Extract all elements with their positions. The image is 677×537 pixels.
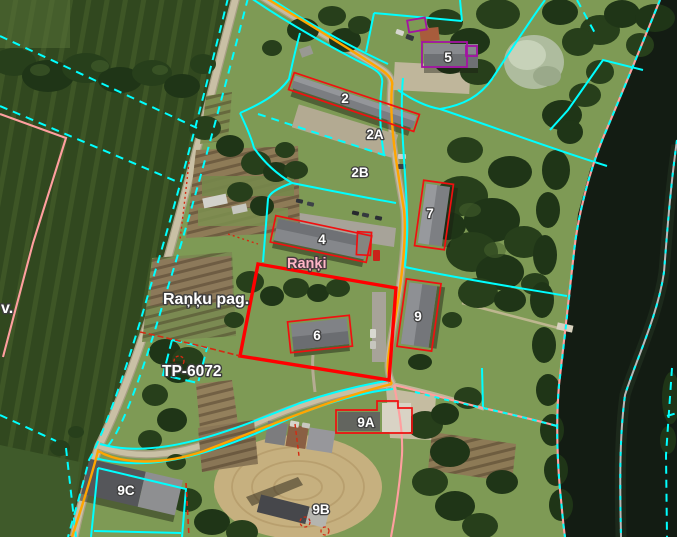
building-label-9a: 9A xyxy=(357,415,375,430)
place-label-plan-ref: TP-6072 xyxy=(162,363,221,380)
place-label-parish: Raņķu pag. xyxy=(163,291,249,308)
building-label-2a: 2A xyxy=(366,127,384,142)
building-label-2b: 2B xyxy=(351,165,369,180)
building-label-6: 6 xyxy=(313,328,321,343)
building-label-9c: 9C xyxy=(117,483,135,498)
building-label-5: 5 xyxy=(444,50,452,65)
building-label-9b: 9B xyxy=(312,502,330,517)
map-canvas[interactable]: 2 2A 2B 4 5 6 7 9 9A 9B 9C Raņķi Raņķu p… xyxy=(0,0,677,537)
building-label-7: 7 xyxy=(426,206,434,221)
aerial-imagery xyxy=(0,0,677,537)
building-label-4: 4 xyxy=(318,232,326,247)
place-label-village: Raņķi xyxy=(287,256,327,272)
place-label-edge-partial: v. xyxy=(1,300,13,317)
building-label-2: 2 xyxy=(341,91,349,106)
building-label-9: 9 xyxy=(414,309,422,324)
map-viewport[interactable]: 2 2A 2B 4 5 6 7 9 9A 9B 9C Raņķi Raņķu p… xyxy=(0,0,677,537)
